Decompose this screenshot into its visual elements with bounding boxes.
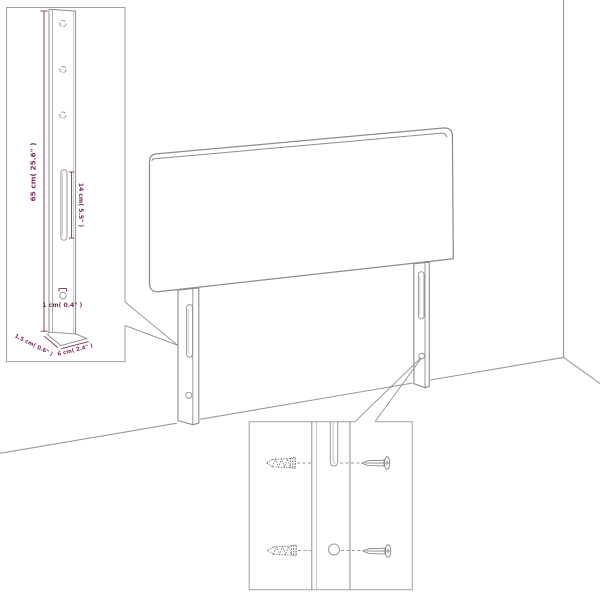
leader-line — [355, 358, 421, 422]
callout-leader-left — [125, 302, 178, 345]
headboard-diagram: 65 cm( 25.6" ) 14 cm( 5.5" ) 1 cm( 0.4" … — [0, 0, 600, 600]
slot-dimension-label: 14 cm( 5.5" ) — [77, 183, 84, 228]
right-leg-hole — [419, 353, 425, 359]
leader-line — [125, 326, 178, 346]
headboard-panel — [150, 128, 454, 292]
left-leg — [178, 288, 199, 425]
left-leg-slot — [187, 305, 193, 358]
callout-leader-right — [355, 358, 421, 422]
hole-dimension-label: 1 cm( 0.4" ) — [42, 302, 82, 309]
leader-line — [375, 358, 421, 421]
floor-line-left-1 — [0, 423, 177, 453]
headboard-panel-outline — [150, 128, 454, 292]
floor-line-left-3 — [430, 357, 563, 380]
right-leg-slot — [418, 272, 424, 319]
right-leg — [414, 262, 429, 388]
left-leg-hole — [186, 392, 192, 398]
floor-line-right — [564, 357, 600, 383]
leader-line — [125, 302, 178, 345]
diagram-canvas: 65 cm( 25.6" ) 14 cm( 5.5" ) 1 cm( 0.4" … — [0, 0, 600, 600]
height-dimension-label: 65 cm( 25.6" ) — [29, 143, 38, 202]
screw-detail-inset — [249, 422, 412, 590]
